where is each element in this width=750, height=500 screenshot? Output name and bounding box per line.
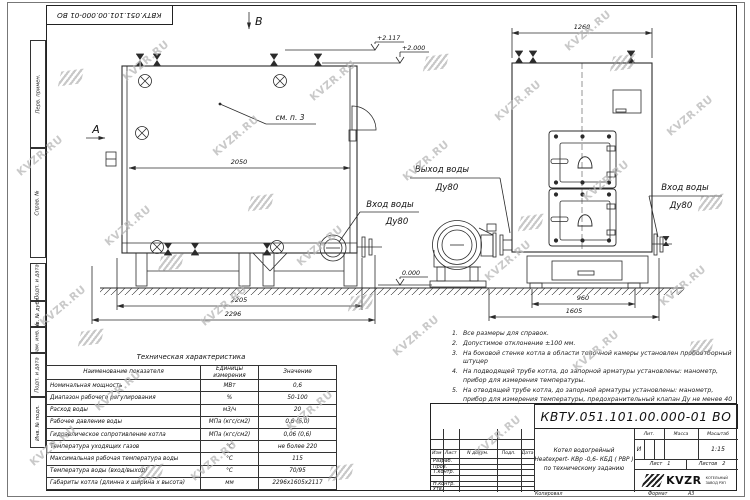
rotated-docnumber-box: КВТУ.051.101.00.000-01 ВО xyxy=(46,5,173,25)
view-marker-b: В xyxy=(255,15,263,28)
stamp-sprav-no: Справ. № xyxy=(30,148,46,258)
inspection-hatch xyxy=(613,90,641,113)
row-utv: Утв. xyxy=(433,486,459,492)
scale-header: Масштаб xyxy=(698,429,738,439)
dim-960: 960 xyxy=(577,294,589,302)
see-note-label: см. п. 3 xyxy=(276,113,305,122)
table-row: Максимальная рабочая температура воды°С1… xyxy=(47,453,337,465)
blower-fan xyxy=(430,221,512,288)
safety-valve-icon xyxy=(515,51,523,63)
lifting-lug-icon xyxy=(271,241,284,254)
note-item: 1.Все размеры для справок. xyxy=(452,330,737,339)
stamp-inv-podl: Инв. № подл. xyxy=(30,397,46,448)
lit-header: Лит. xyxy=(634,429,664,439)
label-water-inlet-right-dn: Ду80 xyxy=(669,201,693,211)
col-header-value: Значение xyxy=(259,366,337,380)
elevation-marks xyxy=(285,42,432,285)
safety-valve-icon xyxy=(314,54,322,66)
label-water-inlet-left-dn: Ду80 xyxy=(385,217,409,227)
dim-2296: 2296 xyxy=(225,310,242,318)
scale-value: 1:15 xyxy=(698,439,738,459)
ground-line xyxy=(100,288,684,295)
col-dokum: N докум. xyxy=(459,449,497,458)
col-header-units: Единицы измерения xyxy=(201,366,259,380)
lifting-lug-icon xyxy=(151,241,164,254)
inlet-flange-right xyxy=(652,234,672,255)
tech-characteristics: Техническая характеристика Наименование … xyxy=(46,353,336,490)
table-row: Диапазон рабочего регулирования%50-100 xyxy=(47,392,337,404)
tech-table-title: Техническая характеристика xyxy=(46,353,336,365)
rotated-docnumber: КВТУ.051.101.00.000-01 ВО xyxy=(57,11,161,20)
stamp-perv-primen: Перв. примен. xyxy=(30,40,46,148)
safety-valve-icon xyxy=(529,51,537,63)
dim-1605: 1605 xyxy=(566,307,583,315)
elevation-top2: +2.000 xyxy=(402,45,425,52)
table-row: Гидравлическое сопротивление котлаМПа (к… xyxy=(47,428,337,440)
lifting-lug-icon xyxy=(139,75,152,88)
safety-valve-icon xyxy=(136,54,144,66)
company-logo: KVZR КОТЕЛЬНЫЙ ЗАВОД РЭП xyxy=(634,469,738,492)
note-item: 2.Допустимое отклонение ±100 мм. xyxy=(452,340,737,349)
col-podp: Подп. xyxy=(497,449,522,458)
table-row: Температура уходящих газов°Сне более 220 xyxy=(47,441,337,453)
col-izm: Изм xyxy=(431,449,443,458)
explosion-valve xyxy=(352,106,376,130)
safety-valve-icon xyxy=(270,54,278,66)
col-header-name: Наименование показателя xyxy=(47,366,201,380)
notes-list: 1.Все размеры для справок. 2.Допустимое … xyxy=(452,330,737,414)
label-water-inlet-left: Вход воды xyxy=(366,200,414,210)
sheet-number: Лист1 xyxy=(634,459,686,469)
stamp-podp-data-2: Подп. и дата xyxy=(30,353,46,397)
table-row: Температура воды (вход/выход)°С70/95 xyxy=(47,465,337,477)
label-water-outlet: Выход воды xyxy=(415,165,469,175)
elevation-ground: 0.000 xyxy=(402,270,420,277)
section-marker-a: А xyxy=(91,123,100,136)
company-name: КОТЕЛЬНЫЙ ЗАВОД РЭП xyxy=(706,476,728,485)
lifting-lug-icon xyxy=(274,75,287,88)
stamp-vzam-inv: Взам. инв. № xyxy=(30,327,46,353)
side-view-supports xyxy=(136,253,357,286)
safety-valve-icon xyxy=(627,51,635,63)
furnace-door-lower xyxy=(549,189,616,246)
boiler-side-view xyxy=(106,54,382,286)
lit-value: И xyxy=(634,439,644,459)
col-list: Лист xyxy=(443,449,460,458)
table-row: Рабочее давление водыМПа (кгс/см2)0,6 (6… xyxy=(47,416,337,428)
tech-table: Наименование показателя Единицы измерени… xyxy=(46,365,337,490)
dim-2050: 2050 xyxy=(231,158,248,166)
note-item: 4.На подводящей трубе котла, до запорной… xyxy=(452,368,737,386)
table-row: Габариты котла (длинна х ширина х высота… xyxy=(47,477,337,489)
water-inlet-flange-circle xyxy=(320,235,346,261)
dim-1260: 1260 xyxy=(574,23,591,31)
lifting-lug-icon xyxy=(136,127,149,140)
table-row: Номинальная мощностьМВт0,6 xyxy=(47,380,337,392)
note-item: 3.На боковой стенке котла в области топо… xyxy=(452,350,737,368)
document-number: КВТУ.051.101.00.000-01 ВО xyxy=(534,404,738,429)
front-view-base xyxy=(527,256,648,288)
boiler-front-view xyxy=(512,51,672,288)
col-data: Дата xyxy=(521,449,534,458)
document-title: Котел водогрейный Heatexpert- КВр -0,6- … xyxy=(534,429,634,492)
rear-pipe-flange xyxy=(357,237,382,257)
table-row: Расход водым3/ч20 xyxy=(47,404,337,416)
label-water-outlet-dn: Ду80 xyxy=(435,183,459,193)
footer-format-value: А3 xyxy=(688,492,694,497)
kvzr-logo-icon xyxy=(642,474,665,487)
footer-format-label: Формат xyxy=(648,492,667,497)
sheets-total: Листов2 xyxy=(686,459,738,469)
furnace-door-upper xyxy=(549,131,616,188)
safety-valve-icon xyxy=(153,54,161,66)
footer-copied: Копировал xyxy=(535,492,562,497)
dim-2205: 2205 xyxy=(231,296,248,304)
mass-header: Масса xyxy=(664,429,698,439)
label-water-inlet-right: Вход воды xyxy=(661,183,709,193)
elevation-top: +2.117 xyxy=(377,35,400,42)
title-block: КВТУ.051.101.00.000-01 ВО Изм Лист N док… xyxy=(430,403,737,491)
drawing-sheet: КВТУ.051.101.00.000-01 ВО Перв. примен. … xyxy=(0,0,750,500)
